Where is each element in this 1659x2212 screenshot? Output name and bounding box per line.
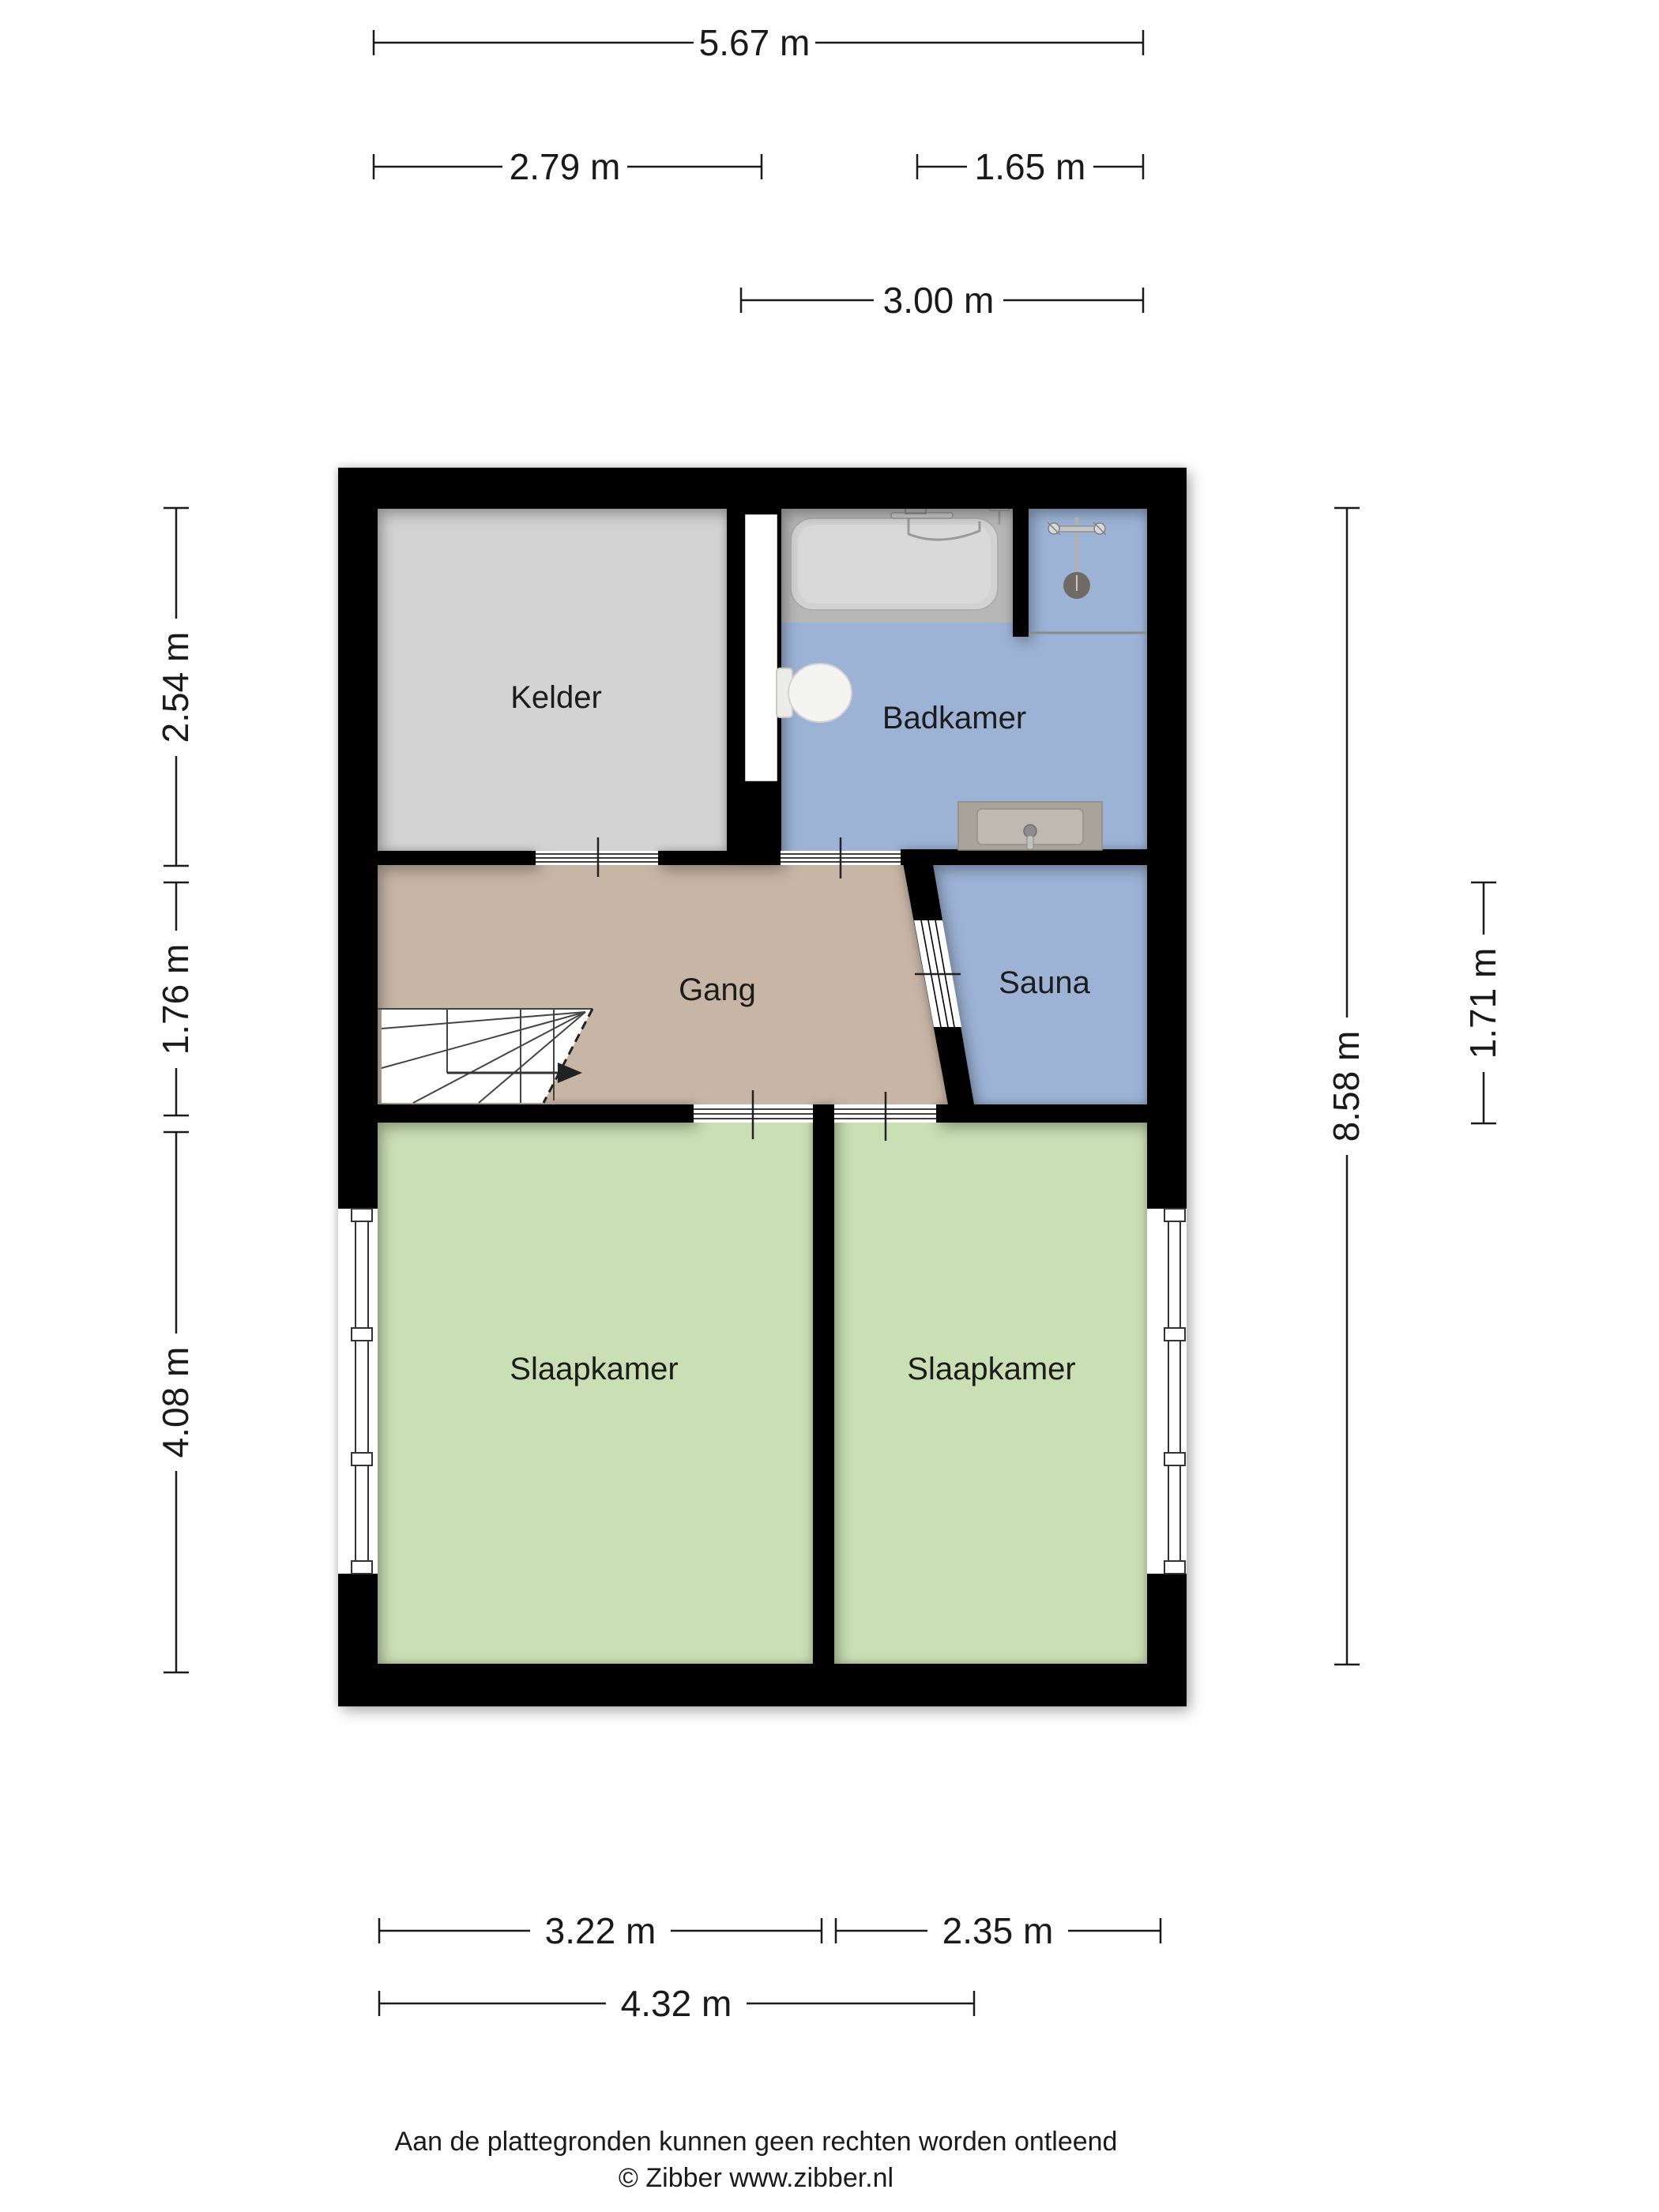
wall-gang-top-a [378, 851, 536, 865]
badkamer-label: Badkamer [882, 701, 1026, 735]
footer-disclaimer: Aan de plattegronden kunnen geen rechten… [395, 2127, 1118, 2157]
floorplan-page: Kelder Badkamer Gang Sauna Slaapkamer Sl… [0, 0, 1659, 2212]
wall-bottom [338, 1664, 1187, 1706]
door-slab-kelder-badkamer [744, 513, 778, 782]
dim-left-gang: 1.76 m [155, 882, 196, 1115]
footer: Aan de plattegronden kunnen geen rechten… [395, 2127, 1118, 2193]
sauna-label: Sauna [999, 965, 1090, 1000]
floorplan-canvas: Kelder Badkamer Gang Sauna Slaapkamer Sl… [0, 0, 1659, 2212]
wall-bedrooms-top-a [378, 1104, 694, 1123]
dim-bottom-links: 3.22 m [379, 1910, 822, 1951]
sink-icon [958, 802, 1102, 850]
dim-bottom-total: 4.32 m [379, 1983, 974, 2024]
dim-left-kelder: 2.54 m [155, 508, 196, 866]
dim-right-sauna: 1.71 m [1462, 882, 1503, 1123]
dim-left-slaapkamer: 4.08 m [155, 1132, 196, 1672]
wall-shower-stub [1013, 509, 1029, 637]
window-opening-left [338, 1209, 378, 1574]
wall-bedroom-divider [813, 1104, 834, 1664]
dim-label: 1.65 m [975, 146, 1086, 187]
dim-top-total: 5.67 m [374, 22, 1143, 63]
kelder-label: Kelder [510, 680, 602, 715]
slaapkamer-links-label: Slaapkamer [510, 1352, 678, 1386]
dim-label: 4.08 m [155, 1347, 196, 1458]
wall-top [338, 468, 1187, 509]
footer-copyright: © Zibber www.zibber.nl [619, 2163, 893, 2193]
gang-label: Gang [679, 972, 756, 1007]
slaapkamer-links-floor [378, 1123, 813, 1664]
slaapkamer-rechts-label: Slaapkamer [907, 1352, 1075, 1386]
dim-bottom-rechts: 2.35 m [836, 1910, 1161, 1951]
dim-label: 1.71 m [1462, 948, 1503, 1059]
wall-bedrooms-top-b [936, 1104, 1147, 1123]
slaapkamer-rechts-floor [834, 1123, 1147, 1664]
toilet-icon [777, 664, 852, 722]
dim-label: 3.22 m [545, 1910, 656, 1951]
dim-top-right: 1.65 m [917, 146, 1143, 187]
dim-label: 3.00 m [883, 280, 995, 321]
dim-right-total: 8.58 m [1326, 508, 1367, 1665]
dim-label: 5.67 m [699, 22, 811, 63]
dim-label: 2.54 m [155, 632, 196, 743]
dim-label: 4.32 m [621, 1983, 732, 2024]
dim-top-left: 2.79 m [374, 146, 762, 187]
dim-label: 8.58 m [1326, 1031, 1367, 1142]
dim-label: 1.76 m [155, 944, 196, 1055]
dim-top-bath: 3.00 m [741, 280, 1143, 321]
dim-label: 2.35 m [942, 1910, 1054, 1951]
bathtub-icon [778, 501, 1013, 623]
dim-label: 2.79 m [510, 146, 621, 187]
wall-sauna-top [901, 849, 1147, 865]
